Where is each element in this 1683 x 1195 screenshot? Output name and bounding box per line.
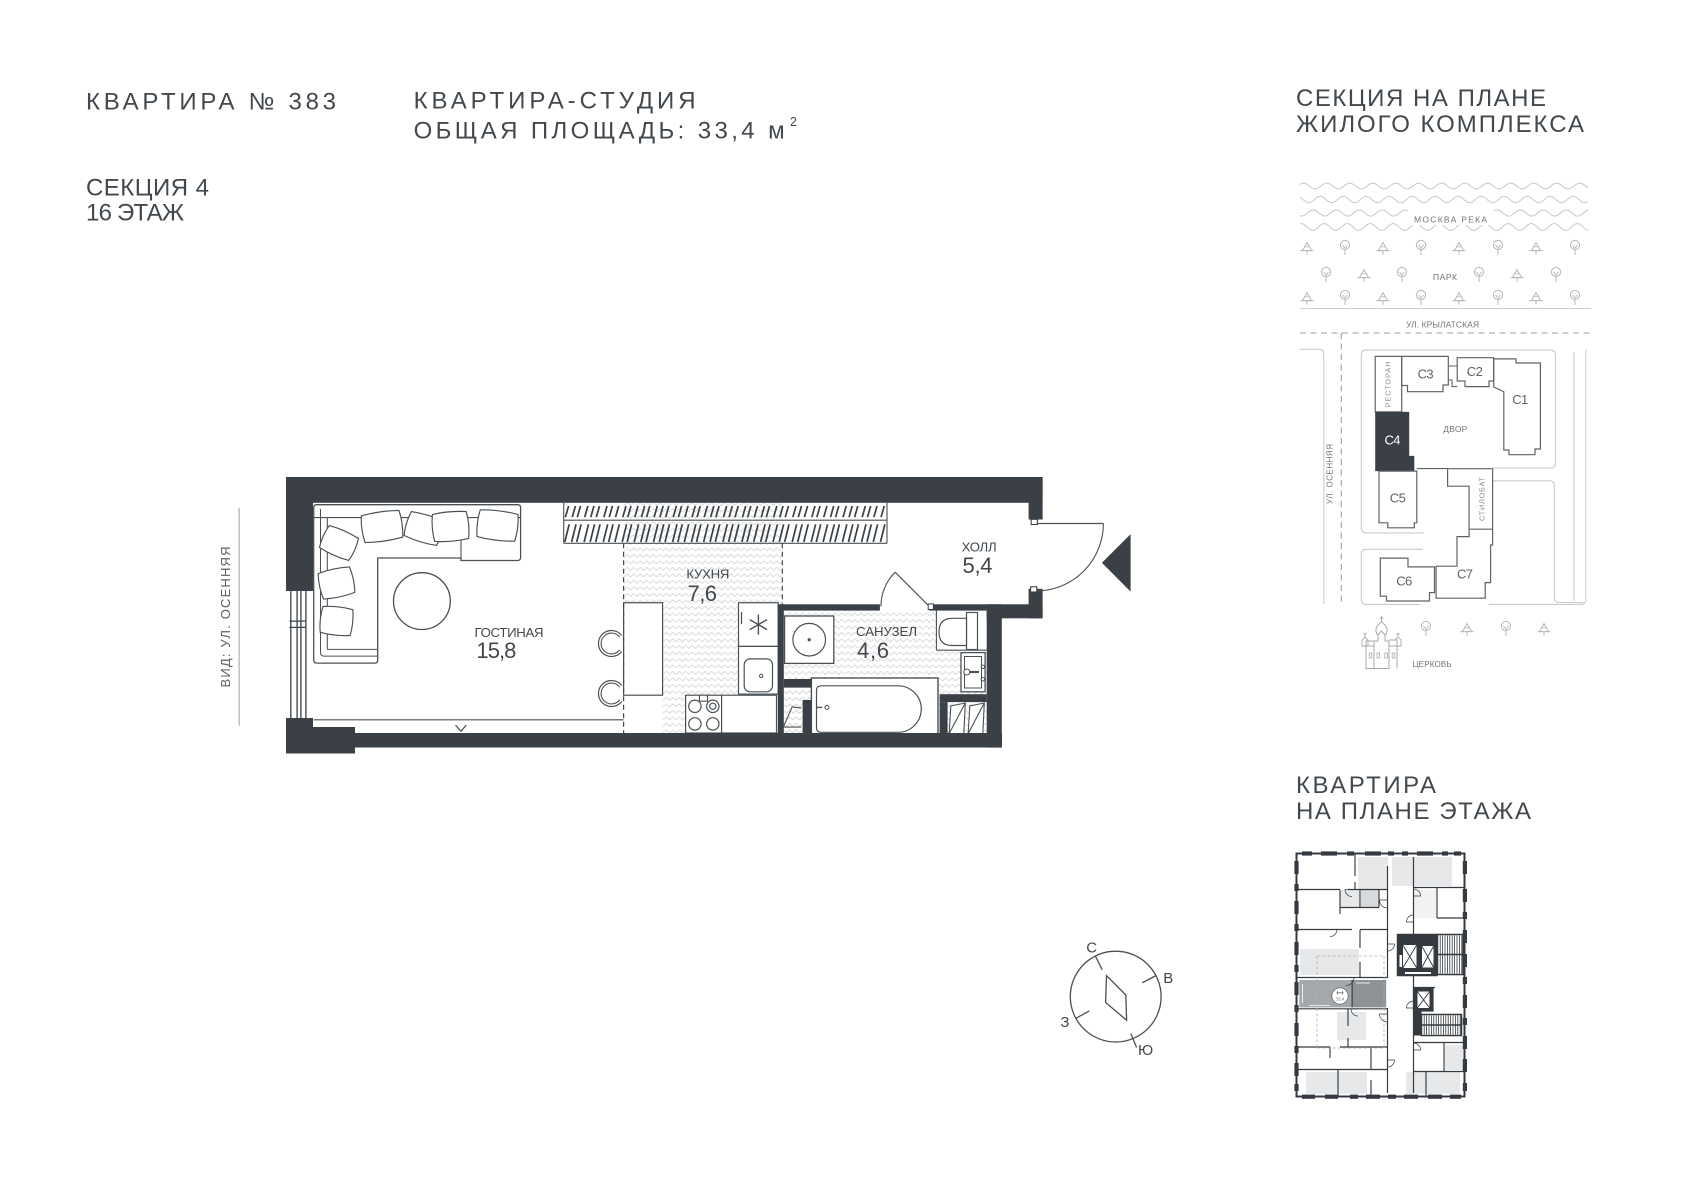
- svg-text:ЖИЛОГО КОМПЛЕКСА: ЖИЛОГО КОМПЛЕКСА: [1296, 111, 1584, 138]
- svg-text:СЕКЦИЯ НА ПЛАНЕ: СЕКЦИЯ НА ПЛАНЕ: [1296, 85, 1546, 112]
- svg-text:16 ЭТАЖ: 16 ЭТАЖ: [86, 200, 184, 227]
- svg-text:ПАРК: ПАРК: [1433, 272, 1457, 282]
- svg-text:4,6: 4,6: [857, 638, 889, 663]
- svg-text:КВАРТИРА № 383: КВАРТИРА № 383: [86, 89, 336, 116]
- svg-text:С4: С4: [1385, 433, 1401, 448]
- svg-text:15,8: 15,8: [476, 638, 516, 663]
- svg-text:С1: С1: [1512, 392, 1528, 407]
- svg-text:В: В: [1163, 970, 1173, 987]
- svg-text:САНУЗЕЛ: САНУЗЕЛ: [856, 624, 917, 639]
- svg-text:Ю: Ю: [1138, 1042, 1153, 1059]
- svg-text:КУХНЯ: КУХНЯ: [686, 566, 729, 581]
- svg-text:ДВОР: ДВОР: [1443, 424, 1467, 434]
- svg-text:МОСКВА РЕКА: МОСКВА РЕКА: [1414, 215, 1487, 225]
- svg-text:УЛ. КРЫЛАТСКАЯ: УЛ. КРЫЛАТСКАЯ: [1406, 320, 1479, 330]
- svg-text:ВИД: УЛ. ОСЕННЯЯ: ВИД: УЛ. ОСЕННЯЯ: [218, 547, 233, 688]
- svg-text:ЦЕРКОВЬ: ЦЕРКОВЬ: [1413, 660, 1452, 669]
- svg-text:С: С: [1086, 940, 1097, 957]
- svg-text:7,6: 7,6: [688, 581, 718, 606]
- svg-text:5,4: 5,4: [963, 553, 993, 578]
- svg-text:СЕКЦИЯ 4: СЕКЦИЯ 4: [86, 175, 209, 202]
- svg-text:С7: С7: [1457, 567, 1473, 582]
- svg-text:З: З: [1060, 1014, 1069, 1031]
- svg-text:УЛ. ОСЕННЯЯ: УЛ. ОСЕННЯЯ: [1326, 444, 1335, 504]
- svg-text:2: 2: [790, 115, 797, 129]
- svg-text:С2: С2: [1467, 364, 1483, 379]
- svg-text:РЕСТОРАН: РЕСТОРАН: [1384, 362, 1393, 408]
- svg-text:С5: С5: [1390, 491, 1406, 506]
- svg-text:33,4: 33,4: [1336, 997, 1345, 1002]
- svg-text:С6: С6: [1396, 574, 1412, 589]
- svg-text:С3: С3: [1418, 367, 1434, 382]
- svg-text:СТИЛОБАТ: СТИЛОБАТ: [1477, 476, 1486, 521]
- svg-text:КВАРТИРА: КВАРТИРА: [1296, 772, 1436, 799]
